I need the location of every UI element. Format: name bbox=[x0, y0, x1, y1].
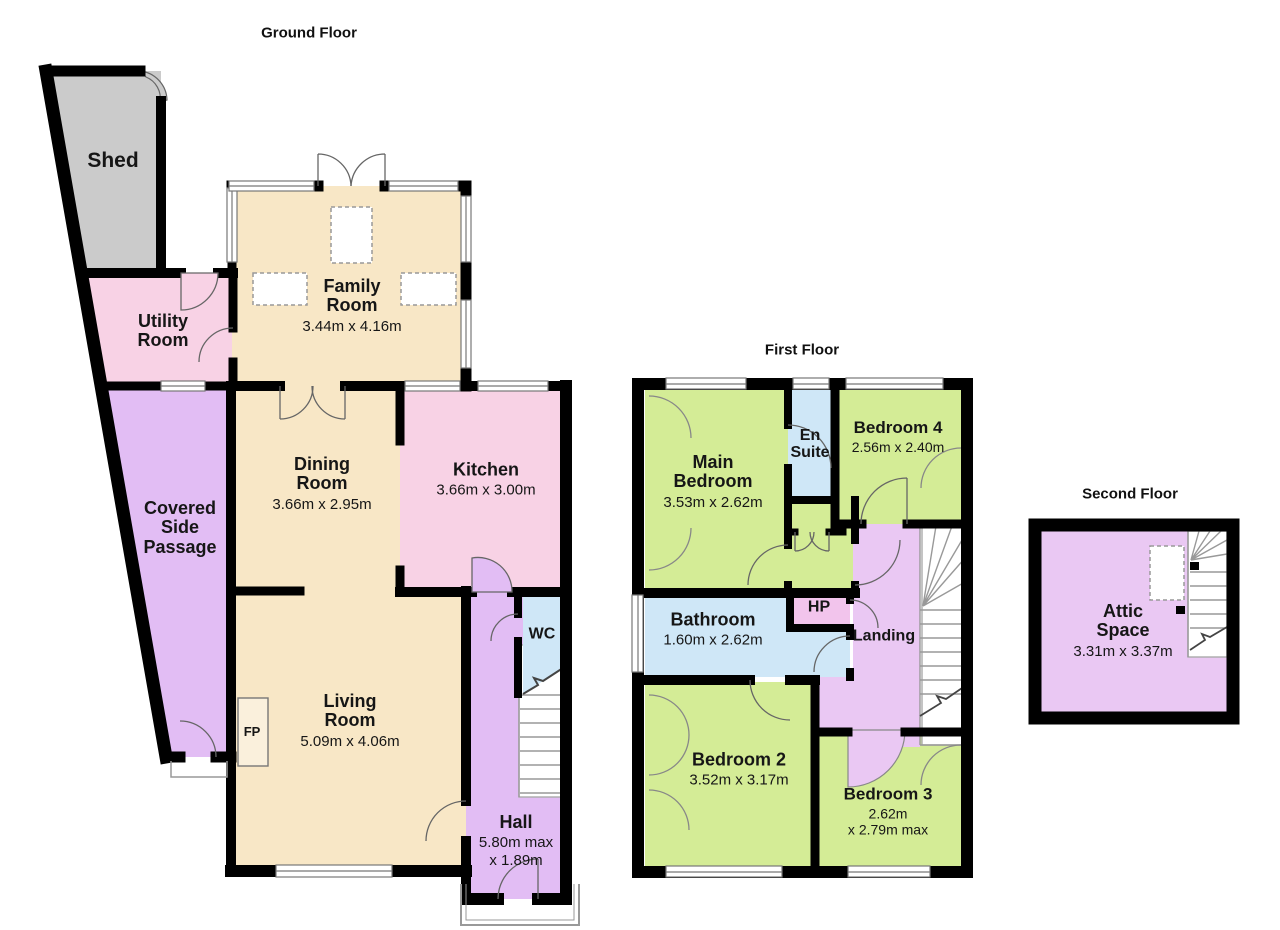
ground-floor-title: Ground Floor bbox=[261, 25, 357, 42]
room-label-utility: Utility Room bbox=[128, 312, 198, 351]
room-label-fp: FP bbox=[244, 725, 261, 739]
room-label-living: Living Room 5.09m x 4.06m bbox=[300, 692, 399, 750]
floorplan-canvas: Ground Floor First Floor Second Floor Sh… bbox=[0, 0, 1280, 930]
room-label-dining: Dining Room 3.66m x 2.95m bbox=[272, 455, 371, 513]
room-label-bedroom3: Bedroom 3 2.62m x 2.79m max bbox=[844, 786, 933, 839]
room-label-kitchen: Kitchen 3.66m x 3.00m bbox=[436, 461, 535, 500]
stair-wall-stub bbox=[1176, 606, 1185, 614]
room-shape-passage bbox=[103, 386, 231, 757]
room-label-shed: Shed bbox=[87, 150, 138, 172]
room-label-en-suite: En Suite bbox=[789, 427, 831, 461]
room-label-passage: Covered Side Passage bbox=[130, 499, 230, 557]
attic-skylight bbox=[1150, 546, 1184, 600]
room-label-bathroom: Bathroom 1.60m x 2.62m bbox=[663, 611, 762, 650]
second-floor-title: Second Floor bbox=[1082, 486, 1178, 503]
room-label-family: Family Room 3.44m x 4.16m bbox=[302, 277, 401, 335]
room-label-landing: Landing bbox=[853, 627, 915, 644]
staircase-first bbox=[920, 526, 965, 745]
room-label-bedroom4: Bedroom 4 2.56m x 2.40m bbox=[852, 419, 945, 455]
first-floor-title: First Floor bbox=[765, 342, 839, 359]
room-label-bedroom2: Bedroom 2 3.52m x 3.17m bbox=[689, 751, 788, 790]
stair-wall-stub bbox=[1190, 562, 1199, 570]
room-label-hall: Hall 5.80m max x 1.89m bbox=[479, 813, 553, 869]
room-label-main-bedroom: Main Bedroom 3.53m x 2.62m bbox=[663, 453, 763, 511]
staircase-second bbox=[1188, 531, 1227, 657]
room-label-hp: HP bbox=[808, 598, 830, 615]
room-label-attic: Attic Space 3.31m x 3.37m bbox=[1073, 602, 1172, 660]
floorplan-drawing bbox=[0, 0, 1280, 930]
room-label-wc: WC bbox=[529, 625, 556, 642]
